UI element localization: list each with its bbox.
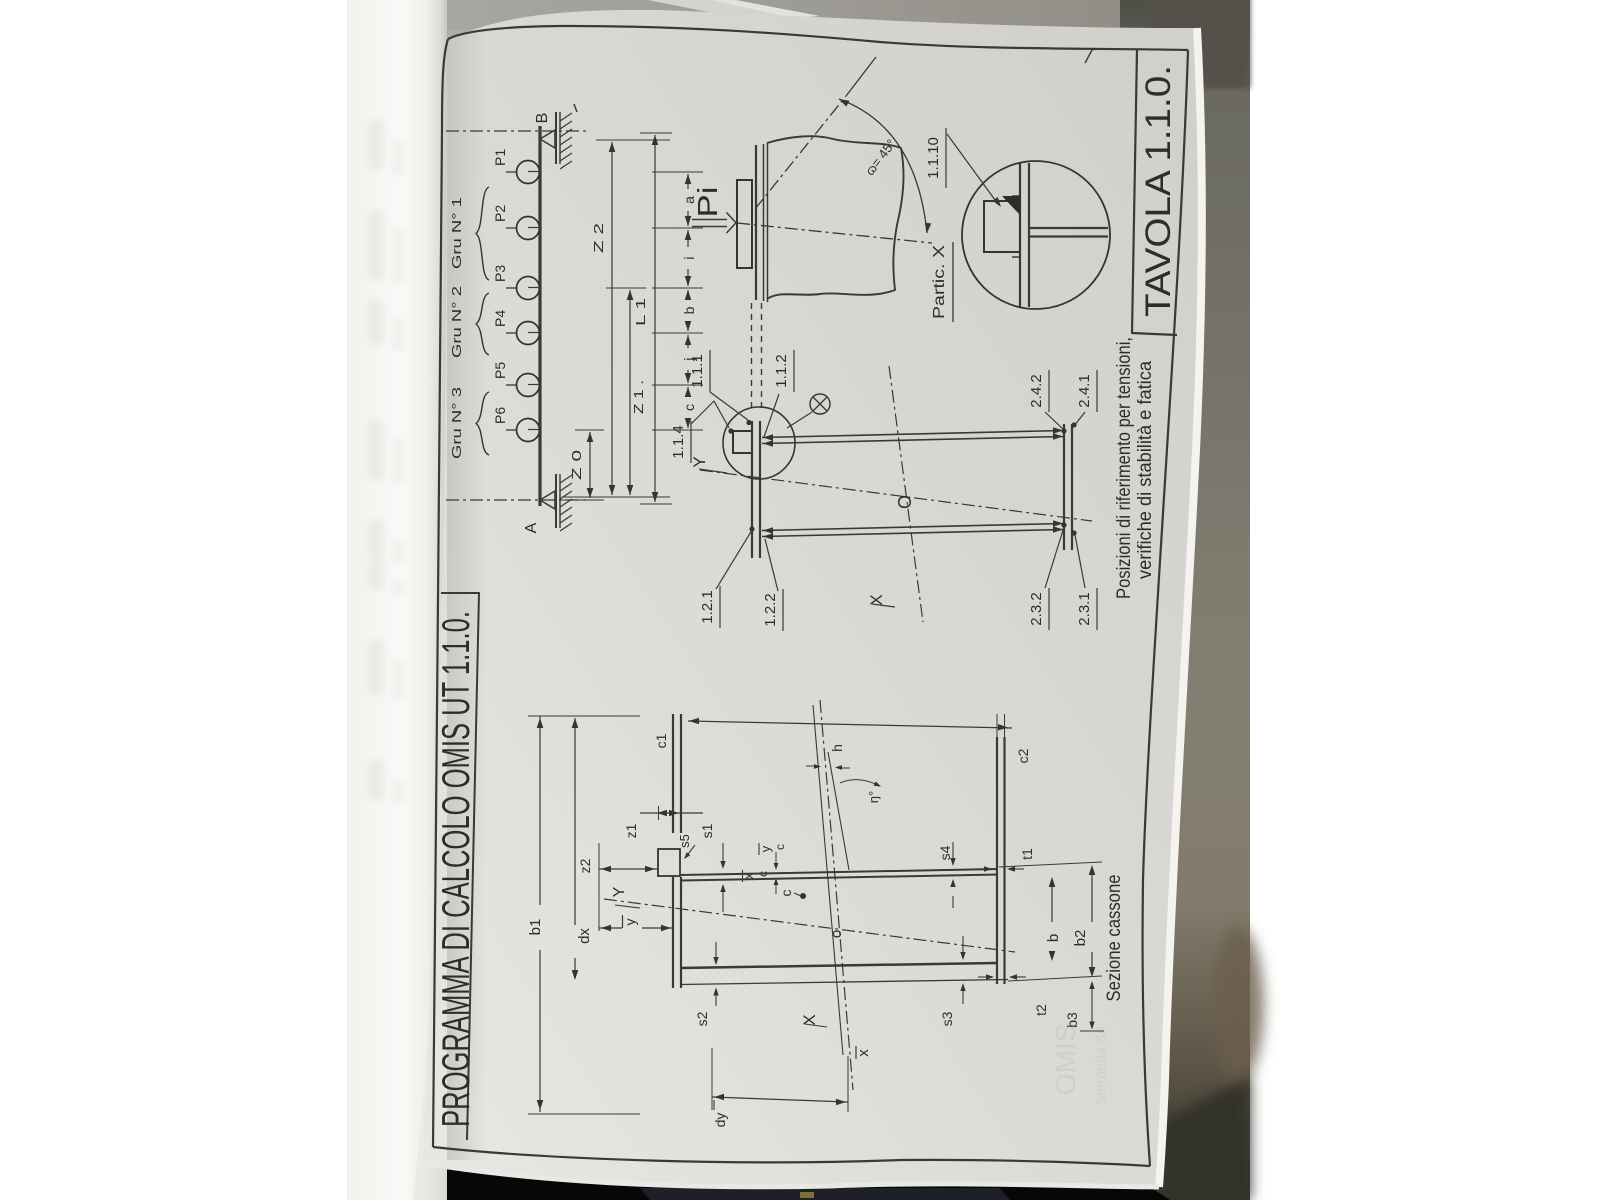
svg-text:X: X bbox=[800, 1014, 819, 1025]
svg-text:L 1: L 1 bbox=[633, 298, 648, 326]
svg-text:z2: z2 bbox=[577, 858, 593, 873]
svg-text:x: x bbox=[741, 872, 756, 879]
svg-text:s2: s2 bbox=[694, 1011, 710, 1026]
svg-text:c: c bbox=[773, 844, 787, 850]
svg-text:2.4.2: 2.4.2 bbox=[1028, 374, 1045, 407]
svg-text:Gru N° 3: Gru N° 3 bbox=[450, 387, 464, 459]
svg-text:PROGRAMMA DI CALCOLO OMIS: PROGRAMMA DI CALCOLO OMIS UT 1.1.0. bbox=[435, 611, 478, 1127]
svg-text:B: B bbox=[534, 113, 551, 124]
svg-text:Z 0: Z 0 bbox=[569, 450, 584, 480]
svg-text:Y: Y bbox=[611, 886, 628, 897]
svg-text:P3: P3 bbox=[492, 265, 508, 282]
svg-text:s1: s1 bbox=[699, 823, 715, 838]
svg-text:o: o bbox=[828, 930, 845, 938]
svg-text:b2: b2 bbox=[1072, 930, 1089, 947]
svg-text:x: x bbox=[855, 1049, 872, 1057]
svg-text:1.1.10: 1.1.10 bbox=[925, 137, 942, 179]
svg-text:Z 1 .: Z 1 . bbox=[631, 380, 646, 414]
svg-text:s5: s5 bbox=[677, 834, 692, 848]
svg-text:P6: P6 bbox=[492, 407, 508, 424]
svg-text:h: h bbox=[829, 744, 845, 752]
svg-text:Gru N° 2: Gru N° 2 bbox=[450, 286, 464, 358]
svg-text:P5: P5 bbox=[492, 362, 508, 379]
svg-text:c: c bbox=[778, 890, 794, 897]
svg-text:A: A bbox=[523, 522, 540, 533]
svg-text:Gru N° 1: Gru N° 1 bbox=[450, 197, 464, 269]
svg-text:P4: P4 bbox=[492, 310, 508, 327]
svg-text:c: c bbox=[681, 404, 697, 411]
svg-text:i: i bbox=[681, 256, 697, 259]
svg-text:y: y bbox=[622, 919, 638, 926]
svg-text:P2: P2 bbox=[492, 205, 508, 222]
svg-text:Posizioni di riferimento per t: Posizioni di riferimento per tensioni, bbox=[1114, 337, 1135, 599]
svg-text:Y: Y bbox=[690, 456, 709, 467]
svg-text:1.1.1: 1.1.1 bbox=[689, 354, 706, 387]
svg-text:b: b bbox=[681, 306, 697, 314]
svg-text:ŋ°: ŋ° bbox=[866, 791, 881, 803]
svg-text:dx: dx bbox=[576, 928, 593, 944]
svg-text:TAVOLA 1.1.0.: TAVOLA 1.1.0. bbox=[1139, 65, 1178, 317]
svg-text:b: b bbox=[1045, 934, 1062, 942]
svg-text:P1: P1 bbox=[492, 149, 508, 166]
svg-text:2.3.1: 2.3.1 bbox=[1076, 592, 1093, 625]
svg-text:s3: s3 bbox=[939, 1011, 955, 1026]
svg-text:1.1.2: 1.1.2 bbox=[773, 354, 790, 387]
svg-text:z1: z1 bbox=[623, 823, 639, 838]
svg-text:y: y bbox=[758, 845, 773, 852]
svg-text:X: X bbox=[867, 594, 886, 605]
svg-text:Partic. X: Partic. X bbox=[931, 245, 948, 319]
svg-text:Sezione cassone: Sezione cassone bbox=[1104, 875, 1125, 1002]
svg-text:verifiche di stabilità e fatic: verifiche di stabilità e fatica bbox=[1135, 361, 1156, 579]
svg-text:1.2.2: 1.2.2 bbox=[762, 593, 779, 626]
svg-text:t1: t1 bbox=[1019, 848, 1035, 860]
svg-text:2.4.1: 2.4.1 bbox=[1076, 374, 1093, 407]
svg-text:Serranda Srl: Serranda Srl bbox=[1092, 1026, 1108, 1105]
svg-text:c: c bbox=[756, 871, 770, 877]
svg-text:Pi: Pi bbox=[692, 187, 723, 218]
svg-text:Z 2: Z 2 bbox=[591, 223, 606, 253]
svg-text:O: O bbox=[895, 495, 915, 509]
svg-text:1.2.1: 1.2.1 bbox=[699, 590, 716, 623]
svg-text:2.3.2: 2.3.2 bbox=[1028, 592, 1045, 625]
svg-text:b1: b1 bbox=[527, 919, 544, 936]
svg-text:t2: t2 bbox=[1033, 1004, 1049, 1016]
svg-text:OMIS: OMIS bbox=[1050, 1023, 1081, 1095]
svg-text:dy: dy bbox=[712, 1113, 728, 1128]
svg-text:c2: c2 bbox=[1015, 748, 1031, 763]
svg-text:1.1.4: 1.1.4 bbox=[670, 425, 687, 458]
svg-text:c1: c1 bbox=[653, 733, 669, 748]
